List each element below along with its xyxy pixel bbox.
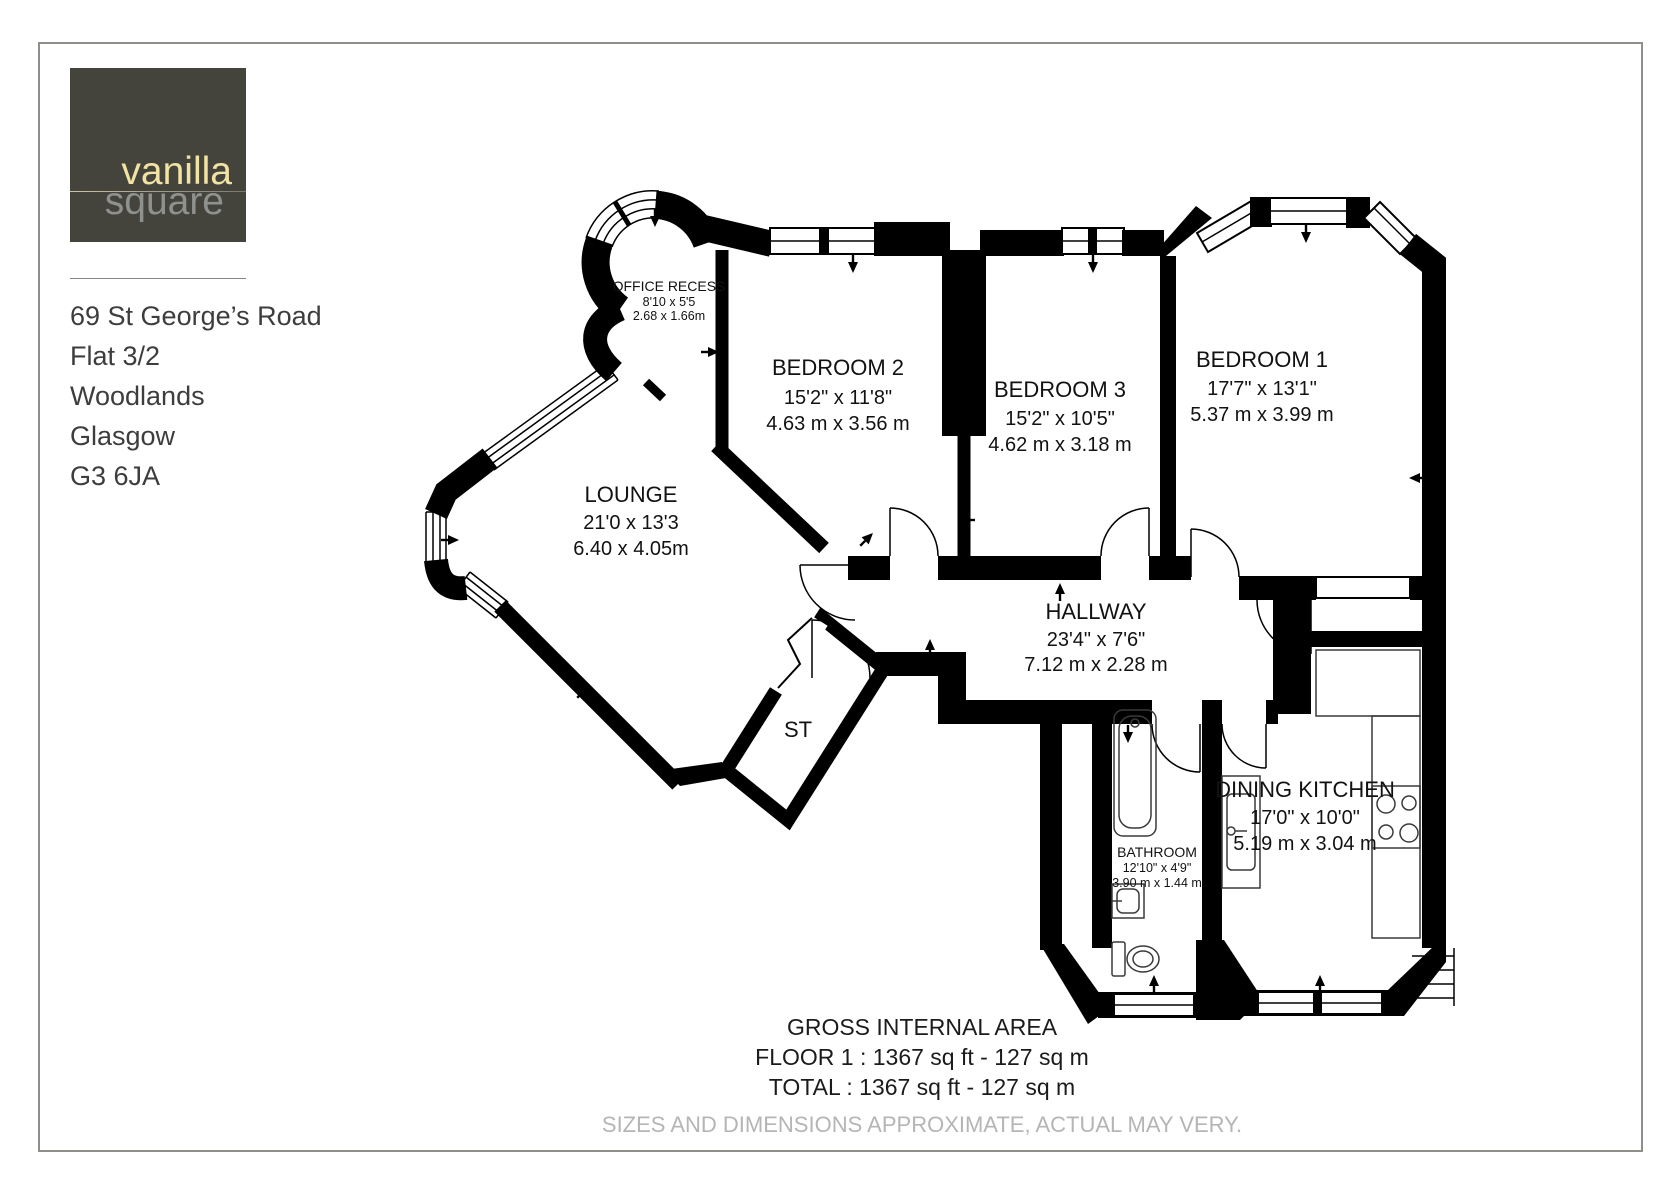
door-lounge-1 — [800, 565, 855, 620]
room-label-storage: ST — [784, 717, 812, 742]
svg-text:BATHROOM: BATHROOM — [1117, 844, 1197, 860]
svg-text:4.63 m x 3.56 m: 4.63 m x 3.56 m — [766, 413, 909, 435]
svg-text:17'7" x 13'1": 17'7" x 13'1" — [1207, 378, 1317, 400]
svg-text:4.62 m x 3.18 m: 4.62 m x 3.18 m — [988, 434, 1131, 456]
room-label-bathroom: BATHROOM 12'10" x 4'9" 3.90 m x 1.44 m — [1112, 844, 1202, 890]
svg-text:3.90 m x 1.44 m: 3.90 m x 1.44 m — [1112, 876, 1202, 890]
total-area-line: TOTAL : 1367 sq ft - 127 sq m — [522, 1072, 1322, 1102]
room-label-bedroom-3: BEDROOM 3 15'2" x 10'5" 4.62 m x 3.18 m — [988, 377, 1131, 456]
floor-plan: OFFICE RECESS 8'10 x 5'5 2.68 x 1.66m BE… — [0, 0, 1680, 1188]
svg-text:5.37 m x 3.99 m: 5.37 m x 3.99 m — [1190, 404, 1333, 426]
walls — [426, 191, 1454, 1024]
svg-text:15'2" x 11'8": 15'2" x 11'8" — [784, 387, 892, 409]
svg-text:DINING KITCHEN: DINING KITCHEN — [1215, 777, 1395, 802]
svg-text:LOUNGE: LOUNGE — [585, 482, 678, 507]
toilet-icon — [1112, 942, 1159, 976]
floorplan-page: vanilla square 69 St George’s Road Flat … — [0, 0, 1680, 1188]
room-label-bedroom-2: BEDROOM 2 15'2" x 11'8" 4.63 m x 3.56 m — [766, 355, 909, 435]
room-label-lounge: LOUNGE 21'0 x 13'3 6.40 x 4.05m — [573, 482, 689, 560]
svg-text:23'4" x 7'6": 23'4" x 7'6" — [1047, 629, 1146, 651]
floor-area-line: FLOOR 1 : 1367 sq ft - 127 sq m — [522, 1042, 1322, 1072]
door-bathroom — [1152, 724, 1200, 772]
svg-text:8'10 x 5'5: 8'10 x 5'5 — [643, 295, 696, 309]
window-seat — [1316, 577, 1410, 598]
svg-text:HALLWAY: HALLWAY — [1045, 599, 1146, 624]
gross-internal-area-title: GROSS INTERNAL AREA — [522, 1012, 1322, 1042]
svg-text:ST: ST — [784, 717, 812, 742]
disclaimer: SIZES AND DIMENSIONS APPROXIMATE, ACTUAL… — [522, 1110, 1322, 1140]
svg-text:12'10" x 4'9": 12'10" x 4'9" — [1123, 861, 1192, 875]
door-kitchen — [1222, 724, 1266, 768]
svg-text:BEDROOM 3: BEDROOM 3 — [994, 377, 1126, 402]
svg-text:7.12 m x 2.28 m: 7.12 m x 2.28 m — [1024, 654, 1167, 676]
svg-text:5.19 m x 3.04 m: 5.19 m x 3.04 m — [1233, 833, 1376, 855]
svg-text:17'0" x 10'0": 17'0" x 10'0" — [1250, 807, 1360, 829]
room-label-bedroom-1: BEDROOM 1 17'7" x 13'1" 5.37 m x 3.99 m — [1190, 347, 1333, 426]
door-bedroom-2 — [890, 508, 938, 556]
svg-text:21'0 x 13'3: 21'0 x 13'3 — [583, 512, 679, 534]
svg-text:2.68 x 1.66m: 2.68 x 1.66m — [633, 309, 705, 323]
svg-text:BEDROOM 1: BEDROOM 1 — [1196, 347, 1328, 372]
bathtub-icon — [1114, 710, 1156, 836]
door-bedroom-1 — [1191, 529, 1239, 577]
door-bedroom-3 — [1101, 508, 1149, 556]
svg-text:OFFICE RECESS: OFFICE RECESS — [613, 278, 726, 294]
svg-text:15'2" x 10'5": 15'2" x 10'5" — [1005, 408, 1115, 430]
room-label-office-recess: OFFICE RECESS 8'10 x 5'5 2.68 x 1.66m — [613, 278, 726, 323]
room-label-dining-kitchen: DINING KITCHEN 17'0" x 10'0" 5.19 m x 3.… — [1215, 777, 1395, 855]
room-label-hallway: HALLWAY 23'4" x 7'6" 7.12 m x 2.28 m — [1024, 599, 1167, 676]
svg-text:BEDROOM 2: BEDROOM 2 — [772, 355, 904, 380]
area-summary: GROSS INTERNAL AREA FLOOR 1 : 1367 sq ft… — [522, 1012, 1322, 1140]
svg-text:6.40 x 4.05m: 6.40 x 4.05m — [573, 538, 689, 560]
